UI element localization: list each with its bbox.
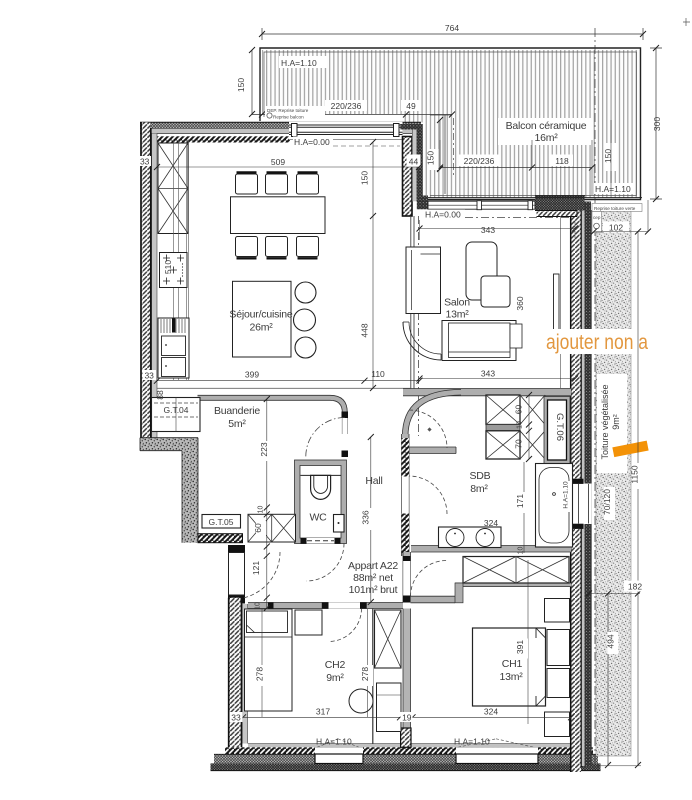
svg-text:H.A=1.10: H.A=1.10 — [595, 184, 631, 194]
svg-text:Appart A22: Appart A22 — [348, 560, 398, 572]
svg-text:336: 336 — [361, 510, 371, 524]
svg-text:317: 317 — [316, 706, 330, 716]
svg-text:300: 300 — [652, 117, 662, 131]
svg-text:H.A=1.10: H.A=1.10 — [316, 737, 352, 747]
svg-text:CH1: CH1 — [502, 658, 523, 670]
svg-text:150: 150 — [236, 78, 246, 92]
svg-text:13m²: 13m² — [499, 671, 523, 683]
svg-text:110: 110 — [371, 369, 385, 379]
svg-text:Hall: Hall — [365, 475, 382, 487]
svg-text:399: 399 — [245, 370, 259, 380]
svg-text:G.T.04: G.T.04 — [163, 405, 188, 415]
svg-text:33: 33 — [144, 370, 154, 380]
svg-text:G.T.05: G.T.05 — [208, 517, 233, 527]
svg-text:H.A=1.10: H.A=1.10 — [281, 58, 317, 68]
svg-text:509: 509 — [271, 157, 285, 167]
svg-text:44: 44 — [409, 157, 419, 167]
svg-text:223: 223 — [259, 442, 269, 456]
svg-text:Séjour/cuisine: Séjour/cuisine — [229, 309, 293, 321]
svg-text:Balcon céramique: Balcon céramique — [506, 120, 587, 132]
svg-text:150: 150 — [426, 151, 436, 165]
svg-text:Reprise toiture verte: Reprise toiture verte — [594, 206, 636, 211]
svg-text:220/236: 220/236 — [464, 156, 495, 166]
svg-text:10: 10 — [258, 506, 265, 514]
svg-text:Buanderie: Buanderie — [214, 405, 260, 417]
svg-text:220/236: 220/236 — [331, 101, 362, 111]
svg-text:448: 448 — [360, 323, 370, 337]
svg-text:360: 360 — [515, 296, 525, 310]
svg-text:WC: WC — [309, 512, 327, 524]
svg-text:16m²: 16m² — [534, 132, 558, 144]
svg-text:33: 33 — [231, 712, 241, 722]
svg-text:H.A=1.10: H.A=1.10 — [563, 481, 570, 509]
svg-text:494: 494 — [606, 634, 616, 648]
svg-text:343: 343 — [481, 225, 495, 235]
svg-text:Reprise balcon: Reprise balcon — [273, 115, 304, 120]
svg-text:182: 182 — [628, 582, 642, 592]
svg-text:278: 278 — [360, 667, 370, 681]
svg-text:H.A=0.00: H.A=0.00 — [294, 137, 330, 147]
svg-text:9m²: 9m² — [611, 414, 621, 430]
svg-text:343: 343 — [481, 369, 495, 379]
svg-text:88m² net: 88m² net — [353, 572, 393, 584]
svg-text:CH2: CH2 — [325, 659, 346, 671]
svg-text:1150: 1150 — [630, 465, 640, 484]
svg-text:9m²: 9m² — [326, 672, 344, 684]
svg-text:ajouter non a: ajouter non a — [546, 331, 648, 354]
svg-text:49: 49 — [406, 101, 416, 111]
svg-text:88: 88 — [155, 390, 165, 400]
svg-text:Toiture végétalisée: Toiture végétalisée — [600, 384, 610, 459]
svg-text:60: 60 — [514, 405, 524, 415]
svg-text:102: 102 — [609, 223, 623, 233]
svg-text:8m²: 8m² — [470, 483, 488, 495]
svg-text:H.A=0.00: H.A=0.00 — [425, 209, 461, 219]
svg-text:19: 19 — [402, 712, 412, 722]
svg-text:26m²: 26m² — [249, 322, 273, 334]
svg-text:278: 278 — [255, 667, 265, 681]
svg-text:cep: cep — [593, 215, 601, 220]
svg-text:101m² brut: 101m² brut — [349, 584, 398, 596]
svg-text:121: 121 — [251, 561, 261, 575]
svg-text:70/120: 70/120 — [602, 489, 612, 515]
svg-text:10: 10 — [518, 547, 525, 555]
svg-text:5m²: 5m² — [228, 418, 246, 430]
svg-text:13m²: 13m² — [445, 309, 469, 321]
svg-text:324: 324 — [484, 706, 498, 716]
svg-text:70: 70 — [514, 439, 524, 449]
svg-text:DEP. Reprise toiture: DEP. Reprise toiture — [267, 108, 309, 113]
svg-text:G.T.06: G.T.06 — [554, 413, 565, 441]
svg-text:764: 764 — [445, 23, 459, 33]
svg-text:H.A=1.10: H.A=1.10 — [454, 737, 490, 747]
svg-text:391: 391 — [515, 640, 525, 654]
svg-text:324: 324 — [484, 518, 498, 528]
svg-text:60: 60 — [253, 523, 263, 533]
svg-text:171: 171 — [515, 494, 525, 508]
svg-text:33: 33 — [140, 156, 150, 166]
svg-text:118: 118 — [555, 156, 569, 166]
svg-text:150: 150 — [603, 149, 613, 163]
svg-text:Salon: Salon — [444, 297, 470, 309]
svg-text:510: 510 — [163, 260, 173, 274]
svg-text:SDB: SDB — [470, 470, 491, 482]
svg-text:150: 150 — [360, 171, 370, 185]
svg-text:10: 10 — [517, 421, 524, 429]
